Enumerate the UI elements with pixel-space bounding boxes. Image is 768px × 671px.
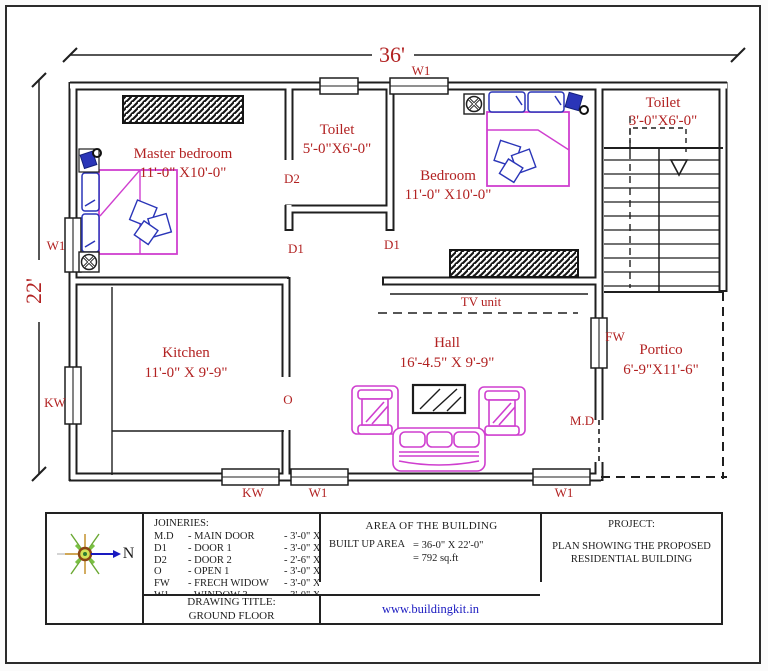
- fw-label: FW: [605, 329, 625, 344]
- ventilator-window-top: [320, 78, 358, 94]
- joinery-abbr: D1: [154, 543, 188, 555]
- pillows: [489, 92, 564, 112]
- d1-right-label: D1: [384, 237, 400, 252]
- north-label: N: [123, 545, 135, 563]
- ceiling-fan-master: [79, 252, 99, 272]
- joinery-name: - OPEN 1: [188, 566, 284, 578]
- joinery-size: - 3'-0" X 7'-0": [284, 543, 319, 555]
- toilet2-name: Toilet: [646, 95, 682, 111]
- w1-window-top: [390, 78, 448, 94]
- joinery-abbr: FW: [154, 578, 188, 590]
- w1-bottom-right-label: W1: [555, 485, 574, 500]
- kw-window-bottom: [222, 469, 279, 485]
- kitchen-size: 11'-0" X 9'-9": [145, 365, 228, 381]
- builtup-value-1: = 36-0" X 22'-0": [413, 539, 483, 552]
- wardrobe-master: [123, 96, 243, 123]
- joinery-row: FW - FRECH WIDOW - 3'-0" X 6'-0": [154, 578, 315, 590]
- joinery-name: - MAIN DOOR: [188, 531, 284, 543]
- stair-down-arrow: [671, 160, 687, 175]
- joinery-size: - 2'-6" X 7'-0": [284, 555, 319, 567]
- joinery-row: M.D - MAIN DOOR - 3'-0" X 7'-0": [154, 531, 315, 543]
- joinery-row: D2 - DOOR 2 - 2'-6" X 7'-0": [154, 555, 315, 567]
- master-bedroom-size: 11'-0" X10'-0": [140, 165, 227, 181]
- master-bed: [82, 170, 177, 254]
- joineries-rows: M.D - MAIN DOOR - 3'-0" X 7'-0" D1 - DOO…: [154, 531, 315, 594]
- north-indicator: N: [47, 514, 142, 594]
- builtup-label: BUILT UP AREA: [329, 539, 405, 565]
- website-cell: www.buildingkit.in: [319, 594, 540, 623]
- portico-name: Portico: [639, 342, 682, 358]
- kitchen-name: Kitchen: [162, 345, 210, 361]
- compass-rose-icon: [55, 528, 127, 580]
- website-link[interactable]: www.buildingkit.in: [382, 602, 479, 617]
- wardrobe-bedroom: [450, 250, 578, 277]
- pillows: [82, 173, 99, 252]
- joinery-size: - 3'-0" X 7'-0": [284, 531, 319, 543]
- hall-name: Hall: [434, 335, 460, 351]
- master-bedroom-name: Master bedroom: [134, 146, 233, 162]
- area-info-cell: AREA OF THE BUILDING BUILT UP AREA = 36-…: [319, 514, 540, 582]
- joinery-name: - DOOR 1: [188, 543, 284, 555]
- project-label: PROJECT:: [608, 519, 655, 530]
- w1-top-label: W1: [412, 63, 431, 78]
- joinery-row: D1 - DOOR 1 - 3'-0" X 7'-0": [154, 543, 315, 555]
- d1-left-label: D1: [288, 241, 304, 256]
- kitchen-counter: [112, 287, 284, 475]
- portico-boundary: [601, 292, 727, 479]
- sofa-three-seater: [393, 428, 485, 471]
- w1-window-bottom-left: [291, 469, 348, 485]
- w1-left-label: W1: [47, 238, 66, 253]
- drawing-title-value: GROUND FLOOR: [189, 610, 275, 624]
- w1-bottom-left-label: W1: [309, 485, 328, 500]
- builtup-value-2: = 792 sq.ft: [413, 552, 483, 565]
- armchair-left: [352, 386, 398, 434]
- toilet1-size: 5'-0"X6'-0": [303, 141, 371, 157]
- project-info-cell: PROJECT: PLAN SHOWING THE PROPOSED RESID…: [540, 514, 721, 582]
- joinery-row: O - OPEN 1 - 3'-0" X 7'-0": [154, 566, 315, 578]
- joinery-abbr: O: [154, 566, 188, 578]
- dimension-line-left: [32, 73, 46, 481]
- kw-left-label: KW: [44, 395, 66, 410]
- hall-size: 16'-4.5" X 9'-9": [400, 355, 495, 371]
- d2-label: D2: [284, 171, 300, 186]
- armchair-right: [479, 387, 525, 435]
- o-label: O: [283, 392, 292, 407]
- w1-window-bottom-right: [533, 469, 590, 485]
- drawing-title-label: DRAWING TITLE:: [187, 596, 275, 610]
- joineries-heading: JOINERIES:: [154, 518, 315, 530]
- joinery-size: - 3'-0" X 6'-0": [284, 578, 319, 590]
- drawing-title-cell: DRAWING TITLE: GROUND FLOOR: [142, 594, 319, 623]
- dimension-left-text: 22': [21, 278, 46, 304]
- joinery-size: - 3'-0" X 7'-0": [284, 566, 319, 578]
- center-table: [413, 385, 465, 413]
- md-label: M.D: [570, 413, 594, 428]
- bedroom-name: Bedroom: [420, 168, 476, 184]
- kw-bottom-label: KW: [242, 485, 264, 500]
- ceiling-fan-bedroom: [464, 94, 484, 114]
- lamp-master: [79, 149, 101, 172]
- joinery-name: - FRECH WIDOW: [188, 578, 284, 590]
- joinery-abbr: D2: [154, 555, 188, 567]
- joinery-name: - DOOR 2: [188, 555, 284, 567]
- toilet2-size: 3'-0"X6'-0": [629, 113, 697, 129]
- lamp-bedroom: [565, 92, 588, 114]
- joinery-abbr: M.D: [154, 531, 188, 543]
- joineries-legend: JOINERIES: M.D - MAIN DOOR - 3'-0" X 7'-…: [142, 514, 319, 594]
- toilet1-name: Toilet: [320, 122, 356, 138]
- bedroom-size: 11'-0" X10'-0": [405, 187, 492, 203]
- area-heading: AREA OF THE BUILDING: [329, 520, 534, 532]
- dimension-top-text: 36': [379, 42, 405, 67]
- staircase: [604, 116, 723, 292]
- project-name: PLAN SHOWING THE PROPOSED RESIDENTIAL BU…: [552, 540, 711, 566]
- bedroom-bed: [487, 92, 569, 186]
- portico-size: 6'-9"X11'-6": [623, 362, 698, 378]
- kw-window-left: [65, 367, 81, 424]
- tv-unit-label: TV unit: [461, 294, 502, 309]
- title-block: N AREA OF THE BUILDING BUILT UP AREA = 3…: [45, 512, 723, 625]
